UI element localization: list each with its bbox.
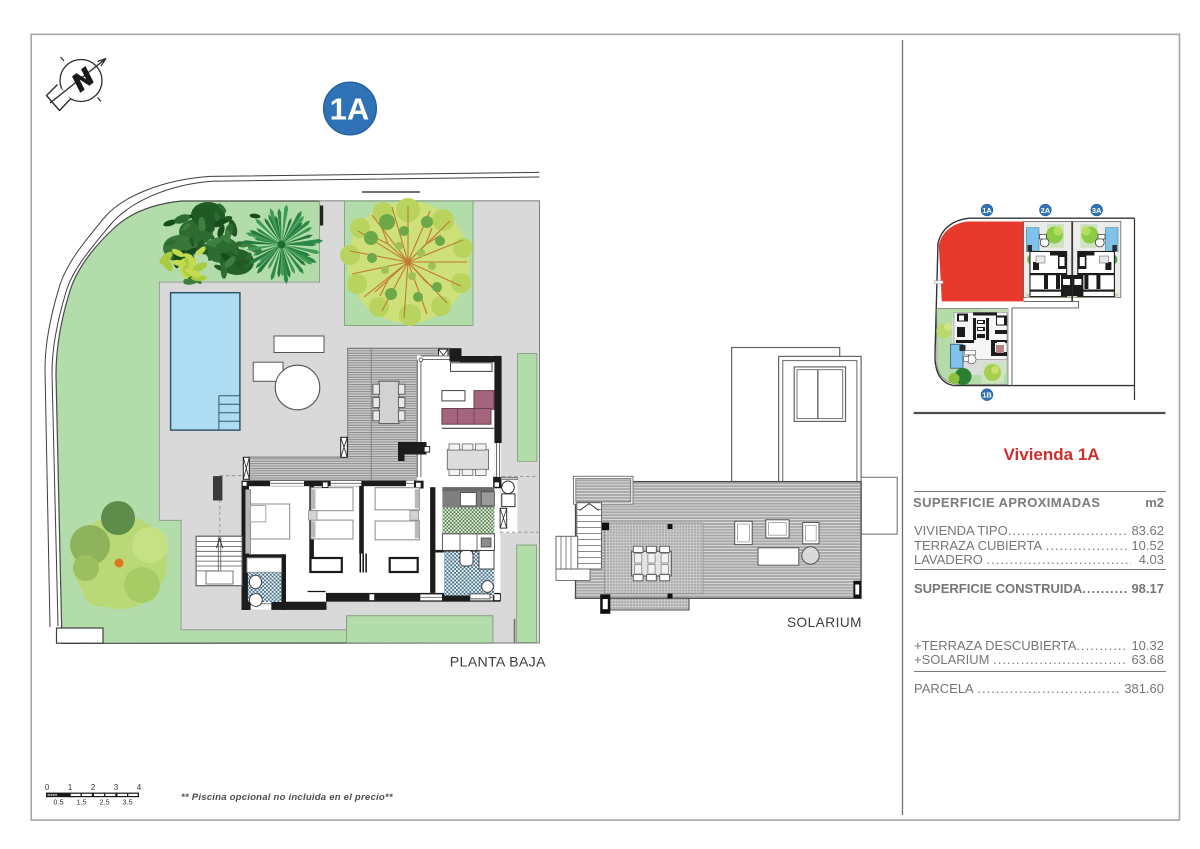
svg-text:4: 4	[137, 783, 142, 792]
svg-text:PLANTA BAJA: PLANTA BAJA	[450, 654, 546, 670]
svg-text:1A: 1A	[982, 206, 992, 215]
svg-text:0.5: 0.5	[53, 798, 63, 807]
svg-text:** Piscina opcional no incluid: ** Piscina opcional no incluida en el pr…	[181, 792, 394, 803]
svg-text:1A: 1A	[330, 92, 370, 127]
svg-text:0: 0	[45, 783, 50, 792]
svg-text:1.5: 1.5	[76, 798, 86, 807]
svg-text:2A: 2A	[1041, 206, 1051, 215]
svg-text:1B: 1B	[982, 391, 992, 400]
svg-text:1: 1	[68, 783, 72, 792]
svg-text:3A: 3A	[1092, 206, 1102, 215]
svg-text:3: 3	[114, 783, 118, 792]
svg-text:SOLARIUM: SOLARIUM	[787, 615, 862, 630]
svg-text:2: 2	[91, 783, 95, 792]
svg-text:2.5: 2.5	[99, 798, 109, 807]
svg-text:3.5: 3.5	[122, 798, 132, 807]
